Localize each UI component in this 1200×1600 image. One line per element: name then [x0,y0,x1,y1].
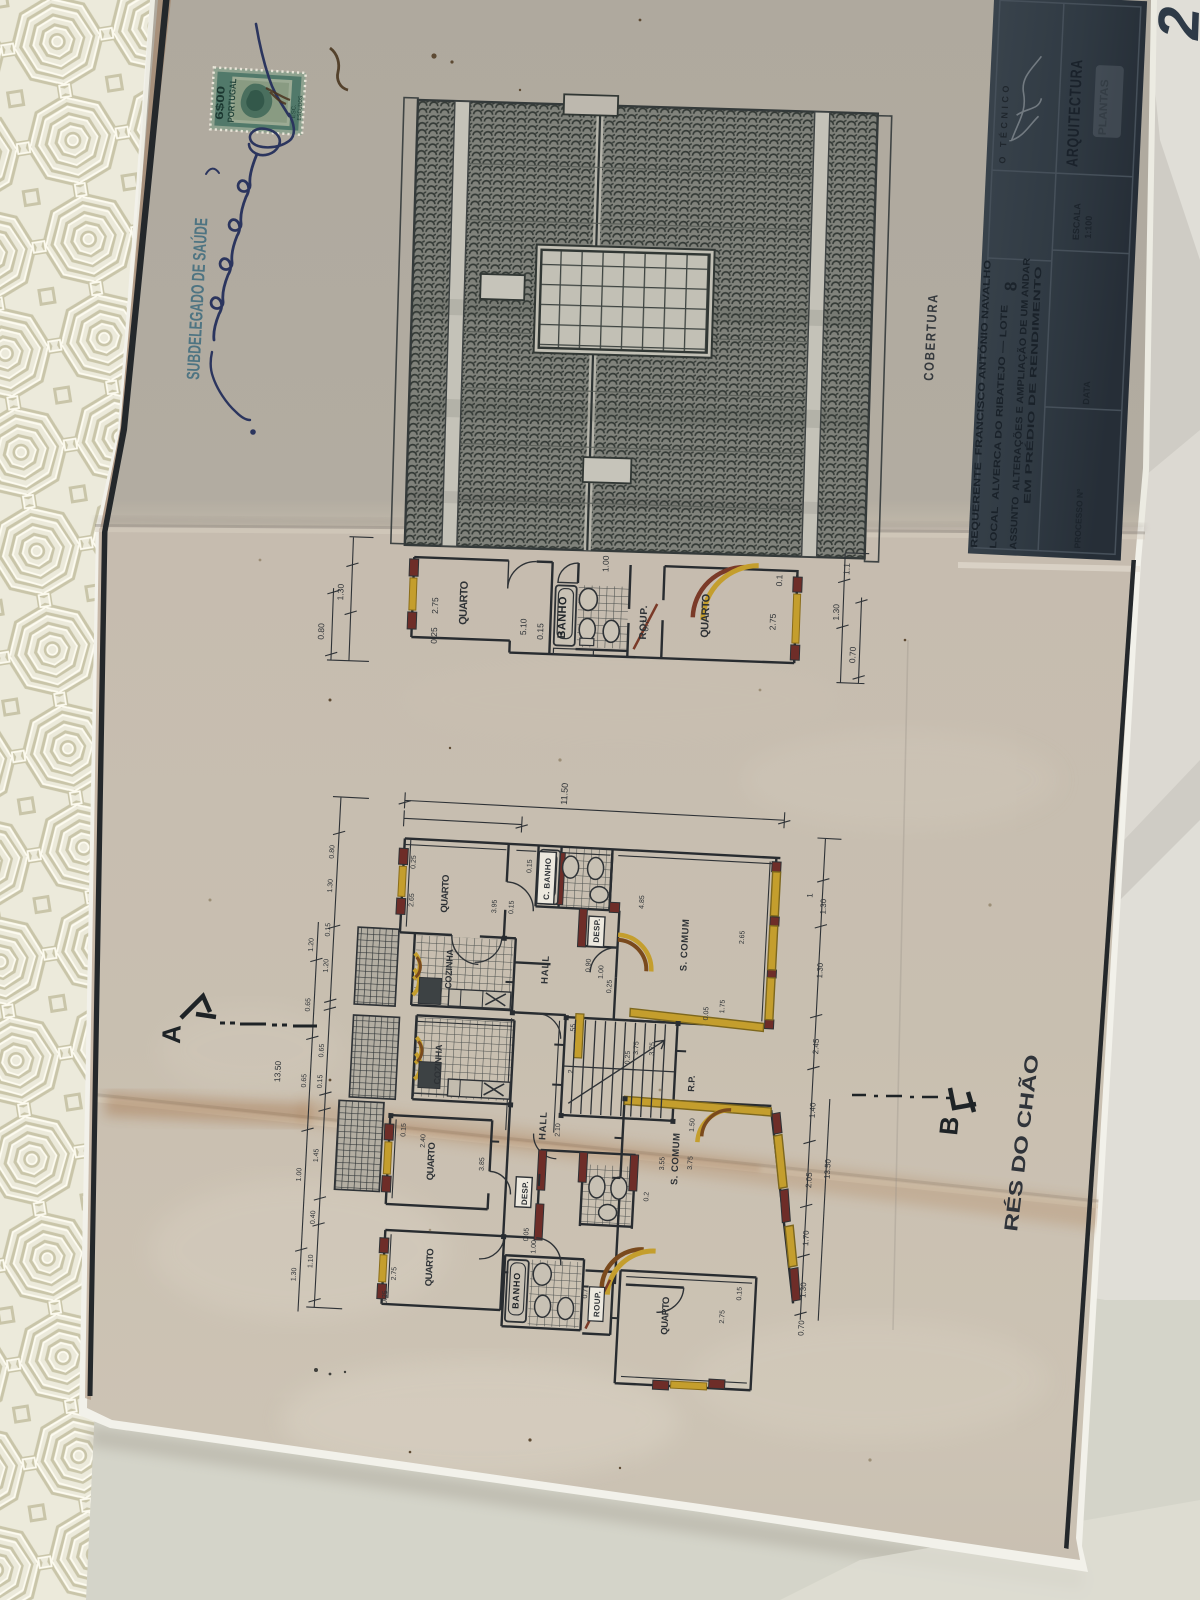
svg-text:1.30: 1.30 [798,1282,808,1299]
svg-text:0.1: 0.1 [774,574,784,586]
svg-text:1.30: 1.30 [815,962,825,979]
svg-text:0.70: 0.70 [847,646,858,663]
svg-text:ROUP.: ROUP. [592,1291,602,1317]
svg-text:ESCALA: ESCALA [1071,202,1083,240]
svg-text:2.75: 2.75 [430,597,441,614]
svg-text:1.1: 1.1 [841,563,851,575]
svg-text:0.65: 0.65 [301,1074,309,1088]
svg-text:1.70: 1.70 [801,1230,811,1247]
svg-text:A: A [156,1024,187,1044]
svg-text:2.75: 2.75 [391,1267,399,1281]
svg-text:0.7: 0.7 [640,619,650,631]
svg-text:1.75: 1.75 [719,999,727,1013]
svg-text:0.15: 0.15 [526,859,534,873]
svg-text:1.10: 1.10 [307,1254,315,1268]
svg-text:QUARTO: QUARTO [659,1296,672,1335]
svg-text:QUARTO: QUARTO [457,580,471,625]
svg-text:0.15: 0.15 [736,1287,744,1301]
svg-text:3.85: 3.85 [479,1157,487,1171]
svg-text:1.00: 1.00 [600,555,611,572]
svg-text:13.50: 13.50 [823,1158,833,1179]
svg-text:1:100: 1:100 [1083,215,1094,238]
svg-text:QUARTO: QUARTO [425,1142,438,1181]
svg-text:1.00: 1.00 [530,1240,538,1254]
svg-text:3.55: 3.55 [659,1156,667,1170]
svg-text:1.50: 1.50 [689,1118,697,1132]
svg-text:0.15: 0.15 [400,1123,408,1137]
svg-text:3.75: 3.75 [649,1042,657,1056]
svg-text:2: 2 [1146,6,1200,42]
svg-text:DATA: DATA [1081,380,1092,405]
svg-text:3.95: 3.95 [491,899,499,913]
svg-text:DESP.: DESP. [592,918,602,942]
svg-text:2.65: 2.65 [739,930,747,944]
svg-text:0.15: 0.15 [508,900,516,914]
svg-text:1.30: 1.30 [818,898,828,915]
svg-text:0.25: 0.25 [624,1051,632,1065]
svg-text:QUARTO: QUARTO [423,1248,436,1287]
svg-text:B: B [933,1115,965,1137]
svg-text:0.90: 0.90 [585,958,593,972]
svg-text:2.10: 2.10 [554,1123,562,1137]
svg-text:2.75: 2.75 [767,613,778,630]
svg-text:1.30: 1.30 [327,879,335,893]
svg-text:2.75: 2.75 [719,1310,727,1324]
svg-text:0.25: 0.25 [410,855,418,869]
svg-text:HALL: HALL [539,956,551,985]
svg-text:0.70: 0.70 [796,1319,806,1336]
svg-text:8: 8 [1001,281,1020,291]
svg-text:0.80: 0.80 [316,623,327,640]
svg-text:3.75: 3.75 [687,1156,695,1170]
svg-text:1.45: 1.45 [313,1148,321,1162]
svg-text:0.25: 0.25 [606,979,614,993]
svg-text:0.2: 0.2 [643,1192,651,1202]
svg-text:11.50: 11.50 [559,783,570,805]
svg-text:0.7: 0.7 [582,1288,590,1298]
svg-text:4.85: 4.85 [639,895,647,909]
svg-text:0.05: 0.05 [523,1227,531,1241]
svg-text:1.20: 1.20 [323,959,331,973]
svg-text:1.30: 1.30 [335,583,346,600]
svg-text:DESP.: DESP. [520,1181,530,1205]
svg-text:0.25: 0.25 [381,1290,389,1304]
svg-text:2.65: 2.65 [408,893,416,907]
svg-text:1.00: 1.00 [598,965,606,979]
svg-text:0.05: 0.05 [703,1007,711,1021]
svg-text:1.00: 1.00 [296,1167,304,1181]
svg-text:QUARTO: QUARTO [439,874,452,913]
svg-text:1.40: 1.40 [808,1102,818,1119]
svg-text:5.10: 5.10 [518,618,529,635]
svg-text:0.65: 0.65 [318,1043,326,1057]
svg-text:BANHO: BANHO [556,596,570,639]
svg-text:2.05: 2.05 [804,1172,814,1189]
svg-text:QUARTO: QUARTO [699,593,713,638]
svg-text:R.P.: R.P. [686,1075,697,1092]
svg-text:1.30: 1.30 [831,604,842,621]
svg-text:0.25: 0.25 [429,627,440,644]
svg-text:0.15: 0.15 [325,923,333,937]
svg-text:2.45: 2.45 [811,1038,821,1055]
svg-text:0.15: 0.15 [317,1074,325,1088]
svg-text:0.40: 0.40 [310,1210,318,1224]
svg-text:0.15: 0.15 [535,623,546,640]
svg-text:COZINHA: COZINHA [443,948,455,989]
svg-text:BANHO: BANHO [510,1273,522,1309]
svg-text:13.50: 13.50 [272,1060,283,1082]
svg-text:HALL: HALL [537,1112,549,1141]
svg-text:2.40: 2.40 [420,1134,428,1148]
svg-text:1.20: 1.20 [308,938,316,952]
svg-text:0.80: 0.80 [329,845,337,859]
svg-text:COZINHA: COZINHA [432,1044,444,1085]
svg-text:0.65: 0.65 [305,998,313,1012]
svg-text:1.30: 1.30 [291,1267,299,1281]
svg-text:3.75: 3.75 [633,1041,641,1055]
